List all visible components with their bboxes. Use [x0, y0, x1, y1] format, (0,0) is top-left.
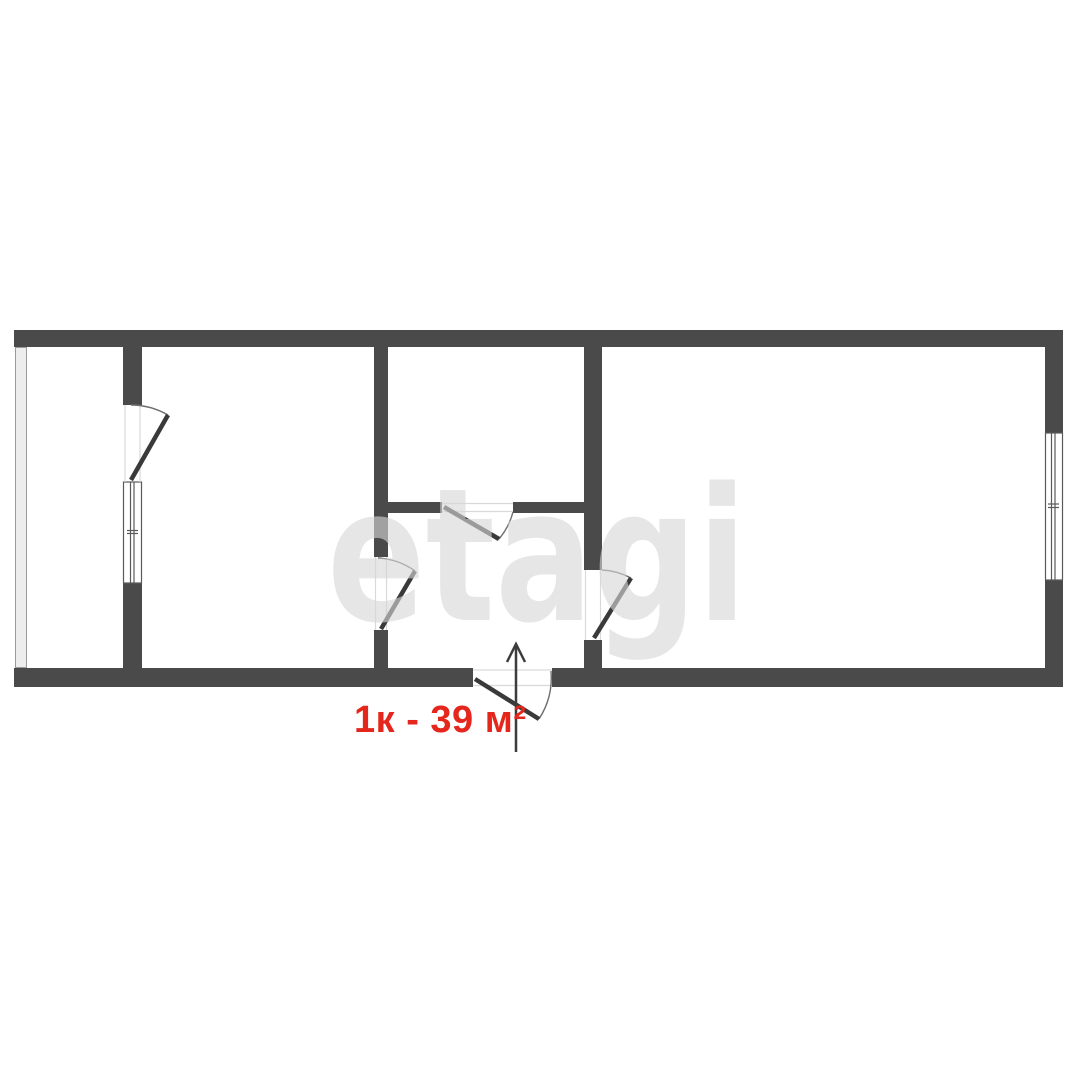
balcony-door-leaf: [131, 415, 168, 480]
wall-outer-right-bottom: [1045, 580, 1063, 668]
right-room-window: [1046, 433, 1063, 580]
wall-balcony-divider-top: [123, 347, 142, 405]
balcony-door-arc: [131, 405, 168, 415]
wall-outer-right-top: [1045, 347, 1063, 433]
balcony-block-window: [124, 482, 142, 583]
entrance-door-arc: [539, 671, 551, 719]
balcony-glazing-window: [16, 348, 27, 668]
floor-plan-image: etagi 1к - 39 м²: [0, 0, 1080, 1080]
wall-outer-bottom-left: [14, 668, 473, 687]
wall-balcony-divider-bottom: [123, 583, 142, 668]
floor-plan-canvas: etagi 1к - 39 м²: [0, 0, 1080, 1080]
area-label: 1к - 39 м²: [354, 699, 527, 741]
wall-outer-top: [14, 330, 1063, 347]
wall-outer-bottom-right: [552, 668, 1063, 687]
watermark-logo: etagi: [327, 448, 747, 664]
